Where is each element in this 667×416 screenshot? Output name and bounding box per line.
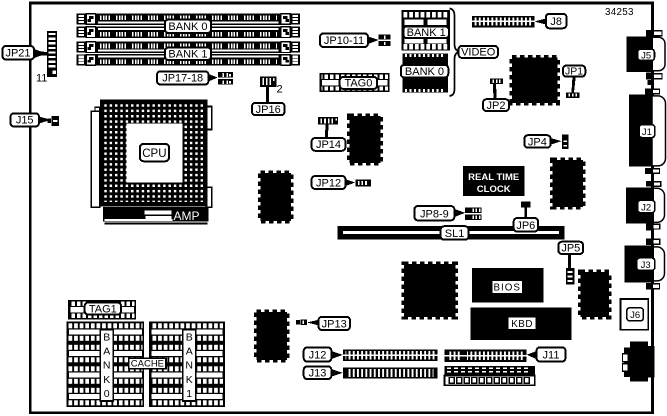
svg-text:K: K bbox=[103, 374, 110, 386]
svg-text:JP17-18: JP17-18 bbox=[162, 73, 203, 85]
svg-text:JP10-11: JP10-11 bbox=[324, 35, 364, 47]
svg-text:J8: J8 bbox=[550, 16, 562, 28]
svg-text:BANK 0: BANK 0 bbox=[168, 21, 207, 33]
svg-text:0: 0 bbox=[104, 388, 110, 400]
svg-text:CACHE: CACHE bbox=[131, 359, 164, 370]
svg-text:1: 1 bbox=[186, 388, 192, 400]
svg-text:N: N bbox=[185, 360, 193, 372]
svg-text:B: B bbox=[186, 332, 193, 344]
svg-text:JP5: JP5 bbox=[561, 243, 580, 255]
svg-text:J11: J11 bbox=[543, 350, 560, 362]
svg-text:11: 11 bbox=[36, 73, 47, 85]
svg-text:BANK 1: BANK 1 bbox=[168, 49, 207, 61]
svg-text:J15: J15 bbox=[16, 115, 34, 127]
svg-text:A: A bbox=[186, 346, 193, 358]
svg-text:J13: J13 bbox=[309, 368, 327, 380]
svg-text:34253: 34253 bbox=[605, 7, 634, 18]
svg-text:JP21: JP21 bbox=[5, 48, 30, 60]
svg-text:2: 2 bbox=[277, 84, 283, 96]
svg-text:JP16: JP16 bbox=[256, 104, 281, 116]
svg-text:J6: J6 bbox=[630, 310, 640, 321]
svg-text:J5: J5 bbox=[641, 50, 651, 61]
svg-text:JP14: JP14 bbox=[316, 139, 341, 151]
svg-text:SL1: SL1 bbox=[445, 228, 465, 240]
svg-text:KBD: KBD bbox=[511, 319, 533, 330]
svg-text:BANK 1: BANK 1 bbox=[407, 27, 446, 39]
svg-text:REAL TIME: REAL TIME bbox=[468, 172, 519, 183]
svg-text:A: A bbox=[103, 346, 110, 358]
svg-text:J3: J3 bbox=[641, 260, 651, 271]
svg-text:JP12: JP12 bbox=[316, 177, 341, 189]
svg-text:AMP: AMP bbox=[174, 209, 200, 223]
svg-text:JP8-9: JP8-9 bbox=[420, 208, 449, 220]
svg-text:JP1: JP1 bbox=[565, 66, 583, 78]
svg-text:VIDEO: VIDEO bbox=[461, 47, 496, 59]
svg-text:TAG0: TAG0 bbox=[344, 78, 372, 90]
svg-text:CPU: CPU bbox=[142, 148, 166, 160]
svg-text:J2: J2 bbox=[641, 202, 651, 213]
svg-text:BIOS: BIOS bbox=[493, 283, 520, 294]
svg-text:B: B bbox=[103, 332, 110, 344]
svg-text:K: K bbox=[186, 374, 193, 386]
svg-text:J1: J1 bbox=[642, 127, 652, 138]
svg-text:JP2: JP2 bbox=[487, 100, 506, 112]
svg-text:TAG1: TAG1 bbox=[89, 303, 117, 315]
svg-text:JP13: JP13 bbox=[322, 318, 347, 330]
svg-text:J12: J12 bbox=[309, 350, 327, 362]
svg-text:JP6: JP6 bbox=[516, 220, 535, 232]
svg-text:JP4: JP4 bbox=[528, 136, 547, 148]
svg-text:CLOCK: CLOCK bbox=[477, 184, 511, 195]
svg-text:BANK 0: BANK 0 bbox=[405, 66, 444, 78]
svg-text:N: N bbox=[103, 360, 111, 372]
